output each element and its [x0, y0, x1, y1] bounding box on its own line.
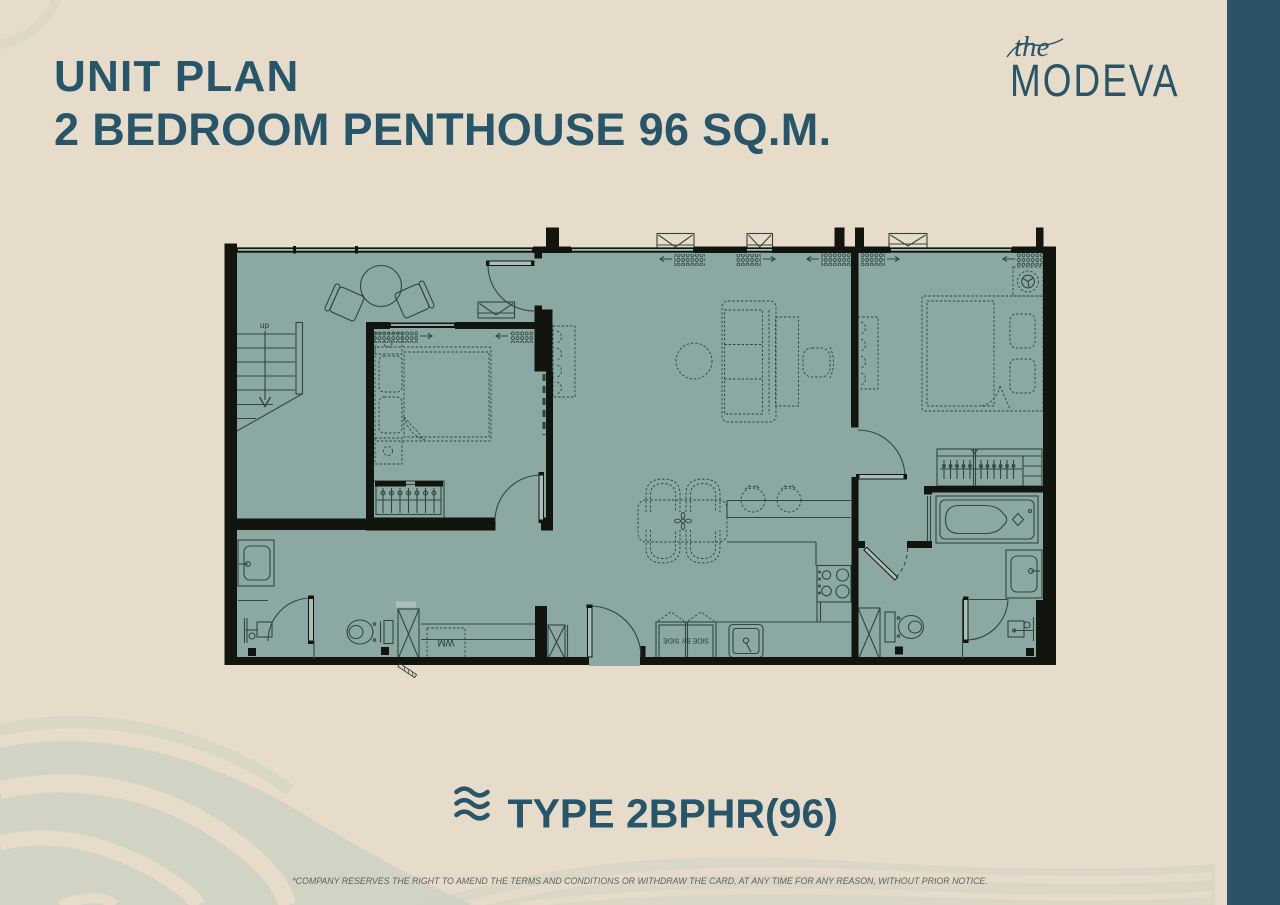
svg-text:SIDE BY SIDE: SIDE BY SIDE	[663, 637, 709, 644]
svg-text:up: up	[260, 321, 269, 330]
svg-text:WM: WM	[437, 637, 454, 648]
